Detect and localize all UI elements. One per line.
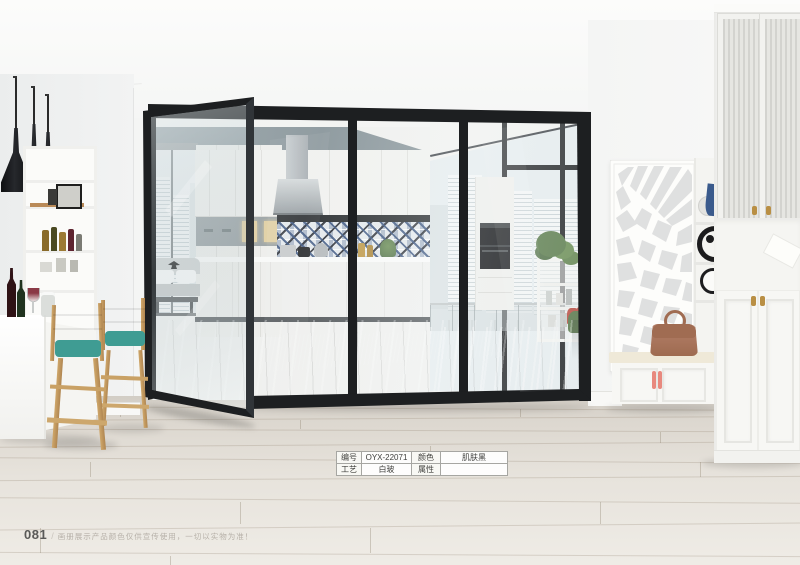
- spec-label: 编号: [337, 452, 362, 464]
- lamp-cord: [33, 88, 35, 130]
- bench-handle: [652, 371, 656, 389]
- shelf-box: [56, 258, 66, 272]
- catalog-page: 编号 OYX-22071 颜色 肌肤黑 工艺 白玻 属性 081 / 画册展示产…: [0, 0, 800, 565]
- spec-row: 工艺 白玻 属性: [337, 464, 508, 476]
- spec-label: 工艺: [337, 464, 362, 476]
- bottle: [68, 229, 74, 251]
- stool-seat: [105, 331, 145, 346]
- spec-value-attr: [441, 464, 508, 476]
- footer-divider: /: [51, 531, 54, 541]
- fluted-glass-door: [760, 14, 800, 226]
- door-right-stile: [577, 114, 591, 401]
- wardrobe-plinth: [714, 450, 800, 463]
- open-door-glass: [151, 105, 246, 409]
- wardrobe-niche: [714, 218, 800, 290]
- bench-door: [662, 368, 706, 402]
- stool-seat: [55, 340, 101, 357]
- lamp-cord: [15, 78, 17, 132]
- bottle: [42, 230, 49, 251]
- wardrobe-lower-door: [716, 290, 758, 452]
- spec-label: 颜色: [412, 452, 441, 464]
- door-bottom-rail: [250, 389, 591, 409]
- handbag-flap: [652, 324, 696, 338]
- spec-value-color: 肌肤黑: [441, 452, 508, 464]
- door-mullion: [459, 115, 468, 398]
- glass-reflection: [480, 126, 560, 392]
- spec-label: 属性: [412, 464, 441, 476]
- footer-disclaimer: 画册展示产品颜色仅供宣传使用，一切以实物为准！: [58, 531, 254, 542]
- photo-frame: [48, 189, 57, 205]
- bottle: [51, 227, 57, 251]
- fluted-glass-door: [718, 14, 766, 226]
- glass-reflection: [262, 132, 330, 392]
- shelf-box: [40, 262, 52, 272]
- wardrobe-crown: [714, 4, 800, 13]
- bench-shadow: [606, 404, 722, 413]
- open-door-edge: [246, 97, 254, 418]
- gold-knob: [752, 206, 757, 215]
- bar-counter: [0, 315, 46, 439]
- wine-glass-stem: [32, 301, 34, 313]
- photo-frame: [56, 184, 82, 209]
- wardrobe: [714, 4, 800, 462]
- gold-knob: [760, 296, 765, 306]
- page-footer: 081 / 画册展示产品颜色仅供宣传使用，一切以实物为准！: [24, 527, 253, 542]
- bottle: [59, 232, 66, 251]
- gold-knob: [751, 296, 756, 306]
- showroom-photo: 编号 OYX-22071 颜色 肌肤黑 工艺 白玻 属性 081 / 画册展示产…: [0, 0, 800, 565]
- door-mullion: [348, 116, 357, 400]
- spec-value-model: OYX-22071: [362, 452, 412, 464]
- shelf-box: [70, 260, 78, 272]
- spec-row: 编号 OYX-22071 颜色 肌肤黑: [337, 452, 508, 464]
- wardrobe-lower-door: [758, 290, 800, 452]
- bottle: [76, 234, 82, 251]
- product-spec-table: 编号 OYX-22071 颜色 肌肤黑 工艺 白玻 属性: [336, 451, 508, 476]
- bench-handle: [658, 371, 662, 389]
- stool-shadow: [100, 424, 164, 433]
- spec-value-craft: 白玻: [362, 464, 412, 476]
- page-number: 081: [24, 527, 47, 542]
- niche-object: [763, 233, 800, 268]
- lamp-cord: [47, 96, 49, 138]
- shoe-bench: [612, 362, 714, 404]
- wine-glass: [27, 288, 40, 302]
- gold-knob: [766, 206, 771, 215]
